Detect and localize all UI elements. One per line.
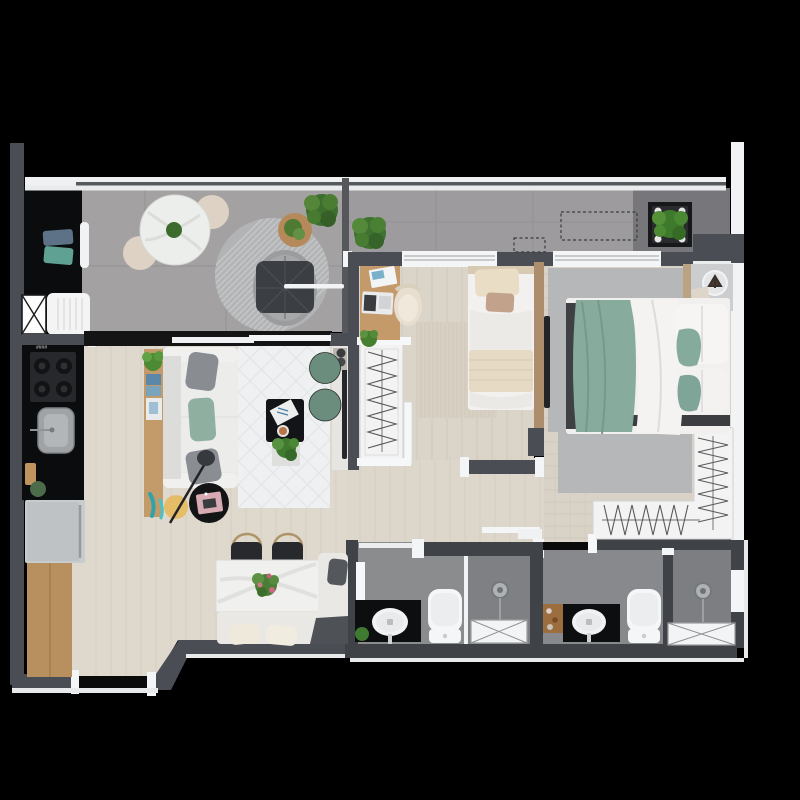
svg-text:####: ####: [36, 345, 47, 351]
